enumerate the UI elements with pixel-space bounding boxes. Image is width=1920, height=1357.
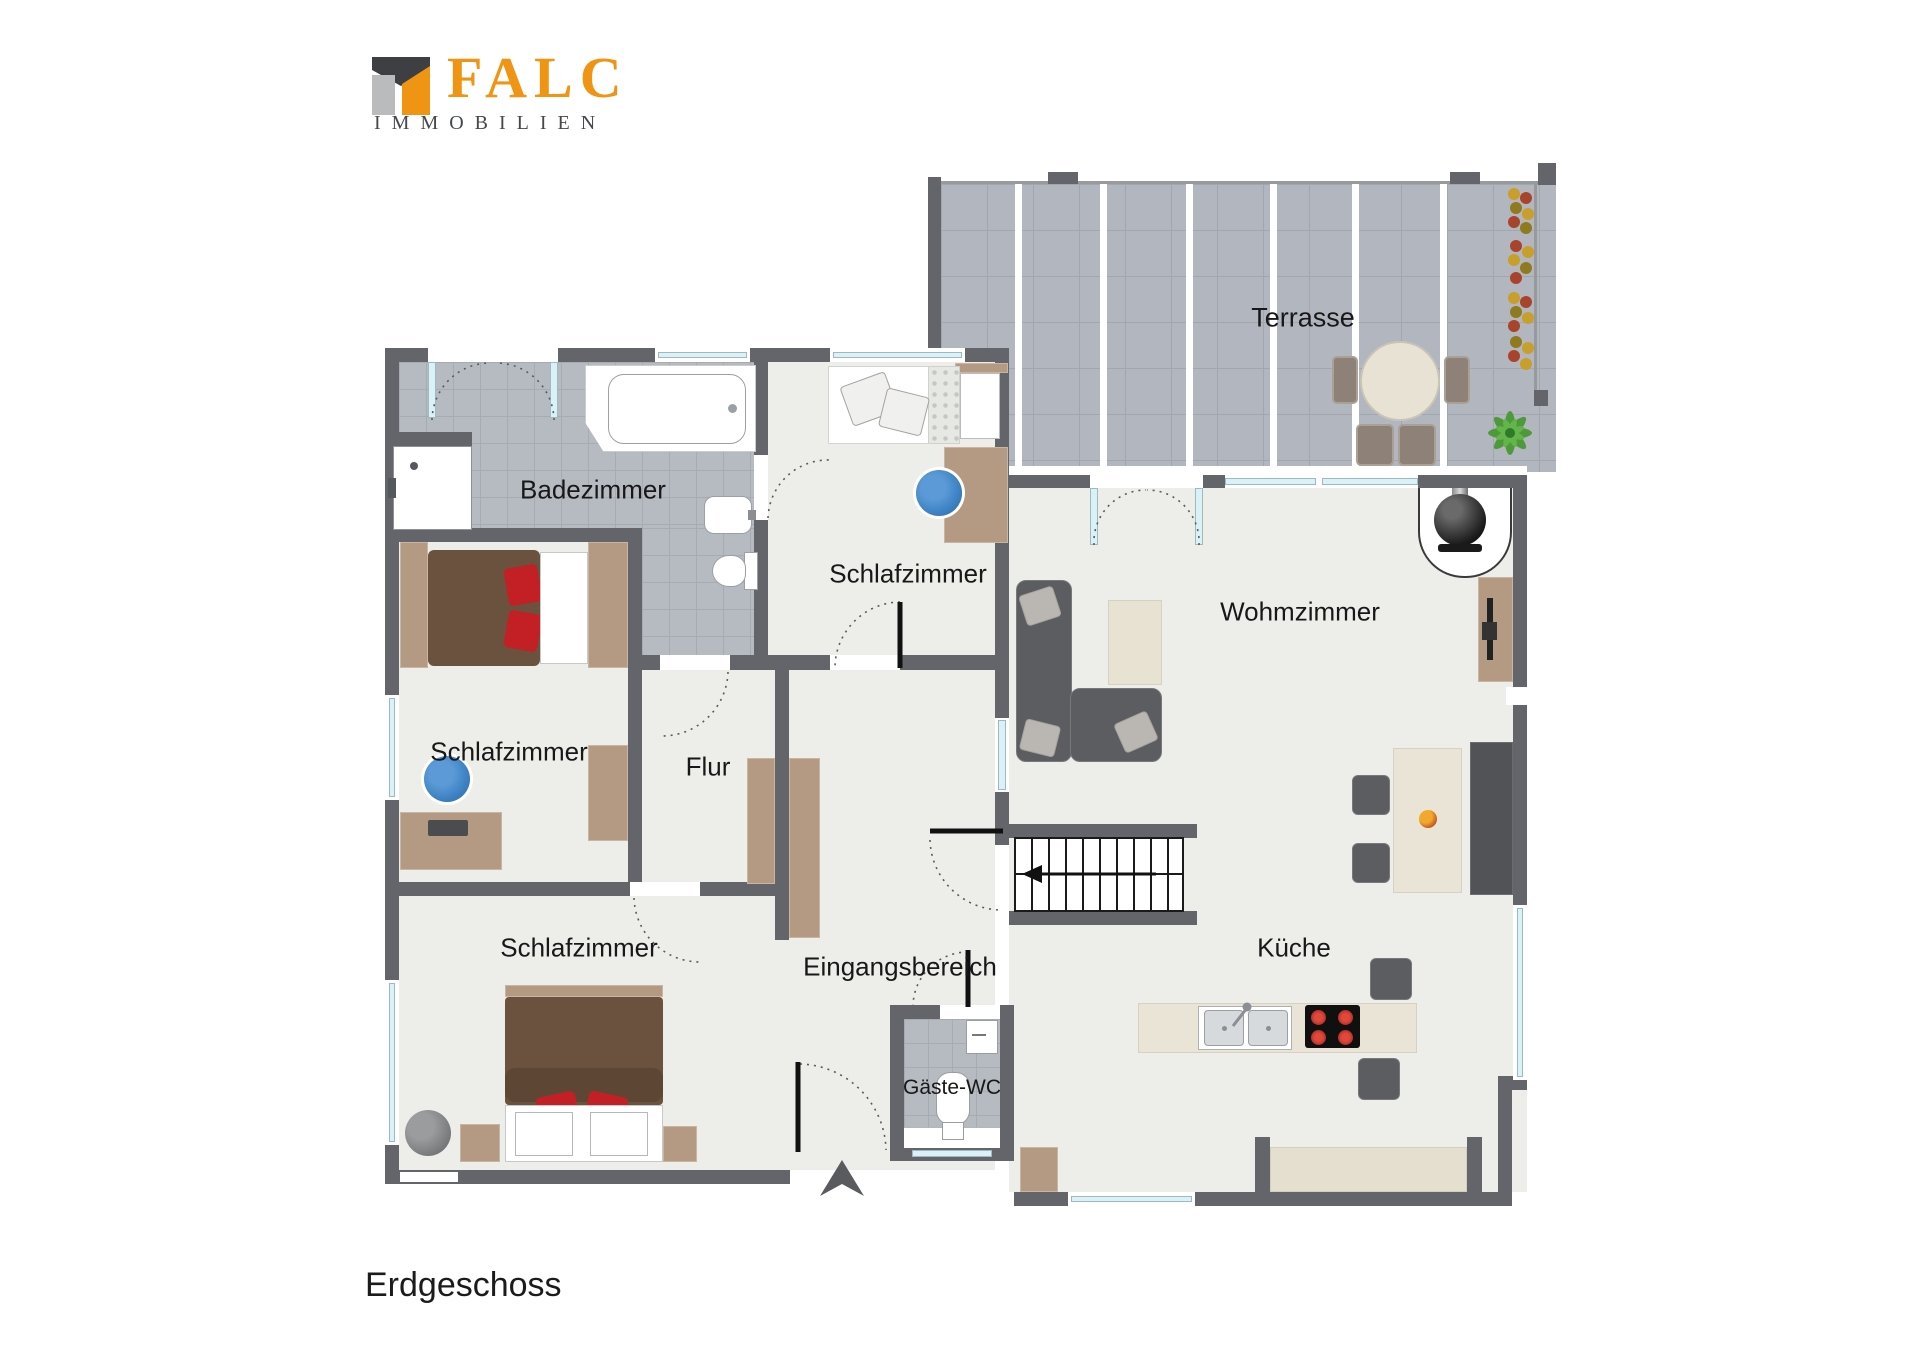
wall-segment	[775, 655, 789, 940]
dining-sideboard	[1470, 742, 1513, 895]
wall-segment	[385, 528, 642, 542]
bed-headboard	[505, 985, 663, 997]
terrace-table	[1360, 341, 1440, 421]
wc-sink	[966, 1020, 998, 1054]
dining-chair	[1352, 843, 1390, 883]
bed-panel	[515, 1112, 573, 1156]
door-opening	[630, 882, 700, 896]
falc-logo-icon	[372, 57, 430, 115]
bed-panel	[590, 1112, 648, 1156]
window-glass	[389, 698, 395, 797]
burner	[1338, 1030, 1353, 1045]
room-label-schlafzimmer-top: Schlafzimmer	[829, 559, 986, 590]
terrace-chair	[1356, 424, 1394, 466]
window-glass	[912, 1150, 992, 1157]
door-leaf	[428, 362, 436, 418]
stove-base	[1438, 544, 1482, 552]
door-leaf	[1195, 488, 1203, 545]
door-opening	[428, 348, 558, 362]
terrace-divider	[1440, 184, 1447, 470]
terrace-rail	[1534, 184, 1537, 396]
window-glass	[1322, 478, 1418, 485]
wall-segment	[1009, 824, 1197, 838]
entry-door-opening	[790, 1170, 890, 1184]
bed-headboard	[955, 363, 1008, 373]
door-opening	[754, 455, 768, 520]
door-opening	[830, 655, 900, 670]
room-label-gaeste-wc: Gäste-WC	[903, 1076, 1001, 1100]
burner	[1338, 1010, 1353, 1025]
bathroom-toilet	[712, 555, 746, 587]
wc-sink-faucet	[972, 1034, 986, 1036]
kitchen-chair	[1370, 958, 1412, 1000]
wall-segment	[385, 432, 472, 446]
kitchen-counter	[1270, 1147, 1467, 1192]
room-label-badezimmer: Badezimmer	[520, 475, 666, 506]
terrace-divider	[1100, 184, 1107, 470]
wall-segment	[928, 177, 941, 350]
room-label-schlafzimmer-unten: Schlafzimmer	[500, 933, 657, 964]
bed-blanket-floral	[928, 366, 960, 444]
nightstand	[663, 1126, 697, 1162]
wardrobe	[789, 758, 820, 938]
toilet-base	[942, 1122, 964, 1140]
shower	[393, 446, 472, 530]
wall-segment	[1048, 172, 1078, 184]
bathroom-ext-floor	[642, 528, 754, 655]
logo-brand-text: FALC	[447, 44, 629, 111]
room-label-kueche: Küche	[1257, 933, 1331, 964]
bathroom-sink	[704, 496, 752, 534]
door-leaf	[1090, 488, 1098, 545]
terrace-floor	[941, 184, 1556, 472]
dining-chair	[1352, 775, 1390, 815]
shower-head-icon	[388, 478, 396, 498]
floor-title: Erdgeschoss	[365, 1266, 562, 1305]
toilet-tank	[744, 552, 758, 590]
bathtub-drain	[728, 404, 737, 413]
window-glass	[658, 352, 747, 358]
wall-segment	[628, 528, 642, 896]
window-glass	[389, 983, 395, 1142]
room-label-wohnzimmer: Wohmzimmer	[1220, 597, 1380, 628]
terrace-chair	[1444, 356, 1470, 404]
tv-console	[1482, 622, 1497, 640]
burner	[1311, 1030, 1326, 1045]
sink-faucet	[748, 510, 756, 520]
terrace-chair	[1398, 424, 1436, 466]
rug	[1108, 600, 1162, 685]
wardrobe	[588, 745, 628, 841]
sliding-door-glass	[998, 720, 1006, 790]
wall-segment	[1534, 390, 1548, 406]
drain	[1222, 1026, 1227, 1031]
wall-segment	[1498, 1090, 1512, 1206]
shower-drain	[410, 462, 418, 470]
room-label-eingangsbereich: Eingangsbereich	[803, 952, 997, 983]
kitchen-chair	[1358, 1058, 1400, 1100]
logo-subtitle-text: IMMOBILIEN	[374, 112, 606, 135]
bed-pillow-red	[503, 609, 543, 652]
wall-segment	[1255, 1137, 1270, 1192]
wood-stove	[1434, 494, 1486, 546]
burner	[1311, 1010, 1326, 1025]
wall-segment	[1538, 163, 1556, 185]
bed-pillow-red	[503, 563, 543, 606]
door-opening	[940, 1005, 1000, 1019]
kitchen-cabinet	[1020, 1147, 1058, 1192]
drain	[1266, 1026, 1271, 1031]
room-label-flur: Flur	[686, 752, 731, 783]
wall-notch	[1506, 687, 1534, 705]
window-glass	[1517, 908, 1523, 1077]
door-leaf	[550, 362, 558, 418]
bathtub	[608, 374, 746, 444]
wall-segment	[1000, 1005, 1014, 1161]
nightstand	[460, 1124, 500, 1162]
wall-segment	[890, 1005, 904, 1161]
door-opening	[660, 655, 730, 670]
bed-mattress	[540, 552, 588, 664]
fruit-bowl	[1419, 810, 1437, 828]
room-label-schlafzimmer-mitte: Schlafzimmer	[430, 737, 587, 768]
bed-blanket-fold	[505, 1068, 663, 1102]
wall-segment	[1450, 172, 1480, 184]
wall-segment	[1009, 911, 1197, 925]
terrace-divider	[1015, 184, 1022, 470]
wardrobe	[400, 542, 428, 668]
desk-chair	[916, 470, 962, 516]
window-opening	[400, 1172, 458, 1182]
window-glass	[833, 352, 962, 358]
bed-pillow-head	[960, 373, 1000, 439]
door-opening	[1090, 475, 1203, 488]
floorplan-page: FALC IMMOBILIEN	[0, 0, 1920, 1357]
laptop	[428, 820, 468, 836]
room-label-terrasse: Terrasse	[1251, 303, 1355, 334]
terrace-divider	[1186, 184, 1193, 470]
terrace-sill	[1009, 466, 1527, 475]
wardrobe	[588, 542, 628, 668]
pouf	[405, 1110, 451, 1156]
window-glass	[1071, 1196, 1192, 1202]
terrace-chair	[1332, 356, 1358, 404]
wardrobe	[747, 758, 775, 884]
wall-segment	[1467, 1137, 1482, 1192]
wall-segment	[385, 882, 789, 896]
window-glass	[1225, 478, 1316, 485]
